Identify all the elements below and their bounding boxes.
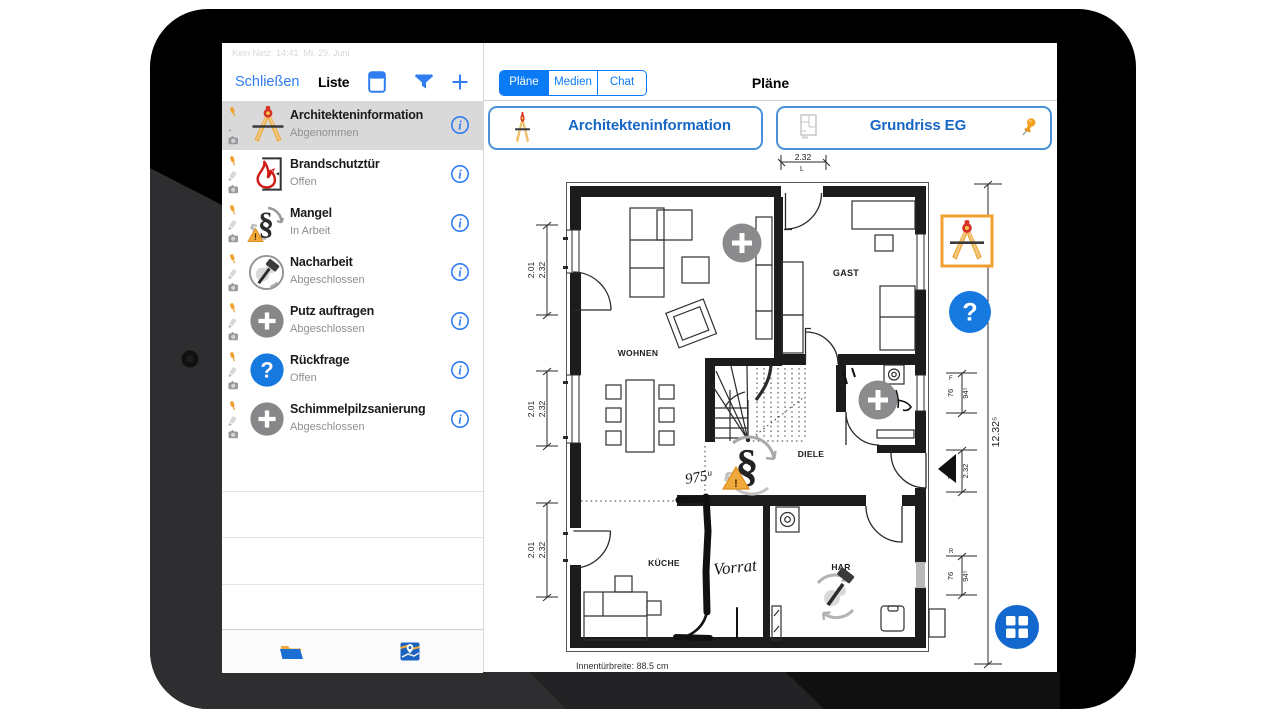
svg-text:L: L: [800, 166, 804, 173]
svg-text:?: ?: [962, 299, 977, 327]
svg-text:2.32: 2.32: [537, 261, 547, 278]
svg-text:KÜCHE: KÜCHE: [648, 558, 680, 568]
svg-text:R: R: [949, 549, 954, 555]
svg-text:2.32: 2.32: [795, 152, 812, 162]
svg-text:2.32: 2.32: [537, 541, 547, 558]
svg-text:2.01: 2.01: [526, 541, 536, 558]
svg-text:2.01: 2.01: [526, 400, 536, 417]
svg-text:2.32: 2.32: [961, 464, 970, 479]
svg-text:975ᵘ: 975ᵘ: [684, 467, 714, 488]
svg-text:2.01: 2.01: [526, 261, 536, 278]
svg-text:GAST: GAST: [833, 268, 859, 278]
svg-text:DIELE: DIELE: [798, 449, 825, 459]
svg-text:WOHNEN: WOHNEN: [618, 348, 659, 358]
svg-text:2.32: 2.32: [537, 400, 547, 417]
svg-text:76: 76: [946, 572, 955, 580]
svg-text:94⁵: 94⁵: [961, 387, 970, 398]
svg-text:94⁵: 94⁵: [961, 570, 970, 581]
svg-text:!: !: [734, 478, 738, 490]
svg-text:12.32⁵: 12.32⁵: [990, 417, 1002, 448]
svg-text:F: F: [949, 376, 953, 382]
svg-text:Innentürbreite: 88.5 cm: Innentürbreite: 88.5 cm: [576, 661, 669, 671]
svg-text:Vorrat: Vorrat: [712, 555, 758, 579]
svg-text:76: 76: [946, 389, 955, 397]
